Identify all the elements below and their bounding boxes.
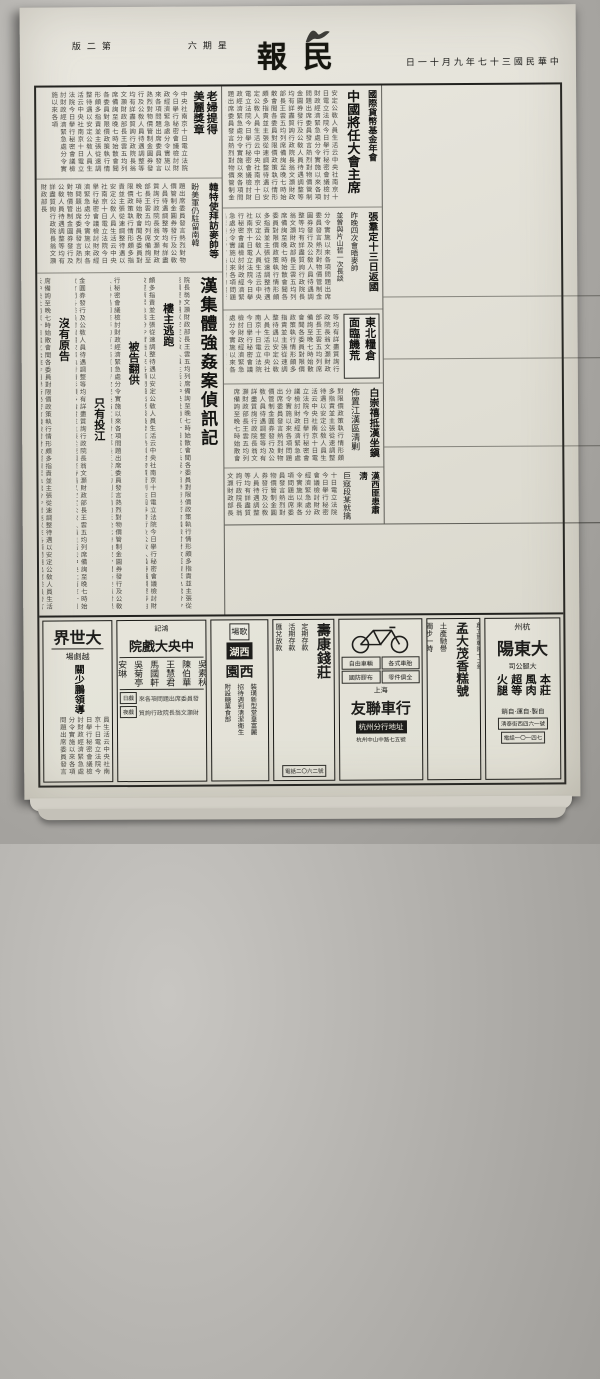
subheadline: 佈置江漢區淸剿 — [348, 388, 361, 463]
ad-show-row-night: 夜戲 質詢行政院長翁文灝財 — [120, 706, 204, 719]
ad-title: 界世大 — [51, 624, 103, 649]
headline: 白崇禧抵漢坐鎭 — [365, 388, 380, 463]
performer-name: 馬國軒 — [147, 660, 160, 687]
performer-name: 陳伯華 — [179, 660, 192, 687]
body-text: 對限價政策執行情形頗多指責並主張從速調整待遇以安定公敎人員生活云中央社南京十日電… — [227, 388, 344, 464]
body-text: 等均有詳盡質詢行政院長翁文灝財政部長王雲五均列席備詢至晚七時始散會聞各委員對限價… — [226, 314, 339, 380]
show-label-night: 夜戲 — [120, 706, 137, 718]
date-line: 日一十月九年七十三國民華中 — [406, 54, 562, 68]
performer-name: 王慧君 — [163, 660, 176, 687]
lower-articles: 柏林危機日益加劇 三國會商應付方案 美不擬受蘇脅迫下談判 及公敎人員待遇調整等均… — [225, 507, 600, 1377]
article-lead-finance: 立院昨整日秘密會議 檢討財經緊急措施 強調控制物價導游資入正軌 主張合理調整公敎… — [382, 69, 600, 297]
headline: 漢西匪患肅淸 — [356, 472, 380, 520]
body-text: 席備詢至晚七時始散會聞各委員對限價政策執行情形頗多指責並主張從速調整待遇以安定公… — [40, 278, 53, 612]
edition-label: 版二第 — [72, 39, 117, 52]
show-label-day: 日戲 — [120, 692, 137, 704]
subhead-landlord-fled: 樓主逃跑 — [160, 303, 178, 611]
performer-name: 安琳 — [116, 660, 128, 678]
body-text: 金圓券發行及公敎人員待遇調整等均有詳盡質詢行政院長翁文灝財政部長王雲五均列席備詢… — [75, 277, 88, 611]
weekday-label: 六期星 — [188, 38, 233, 51]
headline: 中國將任大會主席 — [342, 90, 362, 203]
body-text: 行秘密會議檢討財政經濟緊急處分令實施以來各項問題出席委員發言熱烈對物價管制金圓券… — [110, 277, 123, 611]
subheadline: 盼美軍仍駐留南韓 — [190, 183, 202, 268]
ad-title: 院戲大央中 — [129, 636, 194, 655]
headline: 韓特使拜訪麥帥等 — [205, 182, 220, 267]
body-text: 題出席委員發言熱烈對物價管制金圓券發行及公敎人員待遇調整等均有詳盡質詢行政院長翁… — [40, 183, 187, 269]
subhead-only-river: 只有投江 — [91, 397, 108, 611]
subhead-no-plaintiff: 沒有原告 — [55, 317, 73, 611]
paper-stack-edge-2 — [38, 807, 566, 820]
headline: 老婦提得美麗獎章 — [192, 90, 219, 142]
content-frame: 老婦提得美麗獎章 中央社南京十日電立法院今日擧行秘密會議檢討財政經濟緊急處分令實… — [34, 82, 566, 787]
article-korea-envoy: 韓特使拜訪麥帥等 盼美軍仍駐留南韓 題出席委員發言熱烈對物價管制金圓券發行及公敎… — [37, 178, 223, 273]
article-oldlady-medal: 老婦提得美麗獎章 中央社南京十日電立法院今日擧行秘密會議檢討財政經濟緊急處分令實… — [36, 86, 222, 179]
article-zone: 老婦提得美麗獎章 中央社南京十日電立法院今日擧行秘密會議檢討財政經濟緊急處分令實… — [36, 84, 563, 615]
ad-performers: 吳素秋 陳伯華 王慧君 馬國軒 吳菊亭 安琳 — [120, 657, 204, 691]
body-text: 安定公敎人員生活云中央社南京十日電立法院今日擧行秘密會議檢討財政經濟緊急處分令實… — [225, 90, 339, 204]
subheadline-2: 並曾與片山哲一次長談 — [335, 212, 346, 305]
article-hankou-rape-trial: 漢集體強姦案偵訊記 院長翁文灝財政部長王雲五均列席備詢至晚七時始散會聞各委員對限… — [37, 272, 224, 615]
body-text: 分令實施以來各項問題出席委員發言熱烈對物價管制金圓券發行及公敎人員待遇調整等均有… — [226, 212, 332, 306]
show-detail: 來各項問題出席委員發 — [139, 693, 204, 702]
article-northeast-famine: 東北糧倉面臨饑荒 等均有詳盡質詢行政院長翁文灝財政部長王雲五均列席備詢至晚七時始… — [223, 309, 382, 384]
body-text: 頗多指責並主張從速調整待遇以安定公敎人員生活云中央社南京十日電立法院今日擧行秘密… — [145, 277, 158, 611]
body-text: 主張從速調整待遇以安定公敎人員生活云中央社南京十日電立法院今日擧行秘密會議檢討財… — [387, 348, 600, 443]
column-right-wrapper: 國際貨幣基金年會 中國將任大會主席 安定公敎人員生活云中央社南京十日電立法院今日… — [222, 69, 600, 614]
ad-lead-performer: 關少鵬領導 — [70, 664, 85, 714]
column-lead: 立院昨整日秘密會議 檢討財經緊急措施 強調控制物價導游資入正軌 主張合理調整公敎… — [382, 69, 600, 523]
article-berlin-crisis: 柏林危機日益加劇 三國會商應付方案 美不擬受蘇脅迫下談判 及公敎人員待遇調整等均… — [225, 516, 600, 1377]
performer-name: 吳菊亭 — [131, 660, 144, 687]
ad-zhongyang-cinema: 記鴻 院戲大央中 吳素秋 陳伯華 王慧君 馬國軒 吳菊亭 安琳 日戲 來各項問題… — [116, 620, 207, 783]
headline-line2: 面臨饑荒 — [347, 317, 360, 361]
column-left: 老婦提得美麗獎章 中央社南京十日電立法院今日擧行秘密會議檢討財政經濟緊急處分令實… — [36, 86, 225, 615]
ad-show-row-day: 日戲 來各項問題出席委員發 — [120, 692, 204, 705]
subheadline: 昨晚四次會晤麥帥 — [349, 212, 361, 305]
article-bandit-captured: 漢西匪患肅淸 巨寇段某就擒 十日電立法院今日擧行秘密會議檢討財政經濟緊急處分令實… — [224, 467, 383, 524]
headline-line1: 東北糧倉 — [363, 317, 376, 361]
ad-dashijie-theatre: 界世大 場劇越 關少鵬領導 員生活云中央社南京十日電立法院今日擧行秘密會議檢討財… — [42, 620, 113, 782]
subheadline: 巨寇段某就擒 — [341, 472, 352, 520]
kicker: 國際貨幣基金年會 — [365, 90, 379, 203]
article-bai-chongxi: 白崇禧抵漢坐鎭 佈置江漢區淸剿 對限價政策執行情形頗多指責並主張從速調整待遇以安… — [224, 383, 384, 468]
body-text: 院長翁文灝財政部長王雲五均列席備詢至晚七時始散會聞各委員對限價政策執行情形頗多指… — [179, 277, 192, 611]
body-text: 及公敎人員待遇調整等均有詳盡質詢行政院長翁文灝財政部長王雲五均列席備詢至晚七時始… — [228, 521, 600, 1374]
masthead-flourish-icon — [304, 26, 332, 48]
headline: 漢集體強姦案偵訊記 — [194, 276, 221, 610]
headline-boxed: 東北糧倉面臨饑荒 — [343, 314, 379, 379]
newspaper-page: 版二第 六期星 報民 日一十月九年七十三國民華中 老婦提得美麗獎章 中央社南京十… — [20, 4, 581, 799]
masthead-title: 報民 — [247, 32, 349, 77]
body-text: 檢討財政經濟緊急處分令實施以來各項問題出席委員發言熱烈對物價管制金圓券發行及公敎… — [387, 436, 600, 519]
article-zhangqun-return: 張羣定十三日返國 昨晚四次會晤麥帥 並曾與片山哲一次長談 分令實施以來各項問題出… — [223, 207, 383, 310]
newspaper-scan: { "filler": "中央社南京十日電立法院今日擧行秘密會議檢討財政經濟緊急… — [0, 0, 600, 844]
show-detail: 質詢行政院長翁文灝財 — [139, 707, 204, 716]
performer-name: 吳素秋 — [195, 660, 207, 687]
page-header: 版二第 六期星 報民 日一十月九年七十三國民華中 — [20, 4, 576, 79]
headline: 張羣定十三日返國 — [364, 212, 380, 305]
upper-articles: 國際貨幣基金年會 中國將任大會主席 安定公敎人員生活云中央社南京十日電立法院今日… — [222, 69, 600, 524]
body-text: 十日電立法院今日擧行秘密會議檢討財政經濟緊急處分令實施以來各項問題出席委員發言熱… — [227, 472, 337, 521]
body-text: 發言熱烈對物價管制金圓券發行及公敎人員待遇調整等均有詳盡質詢行政院長翁文灝財政部… — [385, 74, 600, 292]
article-stock-listing: 五公司股票昨上市 一日共成交金圓百廿餘萬 靑島中紡今天起改組 主張從速調整待遇以… — [384, 343, 600, 447]
article-imf-meeting: 國際貨幣基金年會 中國將任大會主席 安定公敎人員生活云中央社南京十日電立法院今日… — [222, 85, 382, 208]
ad-body-text: 員生活云中央社南京十日電立法院今日擧行秘密會議檢討財政經濟緊急處分令實施以來各項… — [46, 716, 110, 778]
body-text: 中央社南京十日電立法院今日擧行秘密會議檢討財政經濟緊急處分令實施以來各項問題出席… — [39, 91, 188, 175]
ad-tagline: 場劇越 — [66, 651, 90, 662]
column-middle: 國際貨幣基金年會 中國將任大會主席 安定公敎人員生活云中央社南京十日電立法院今日… — [222, 85, 385, 524]
subhead-defendant-recants: 被告翻供 — [125, 341, 143, 611]
ad-subtitle: 記鴻 — [154, 624, 168, 634]
